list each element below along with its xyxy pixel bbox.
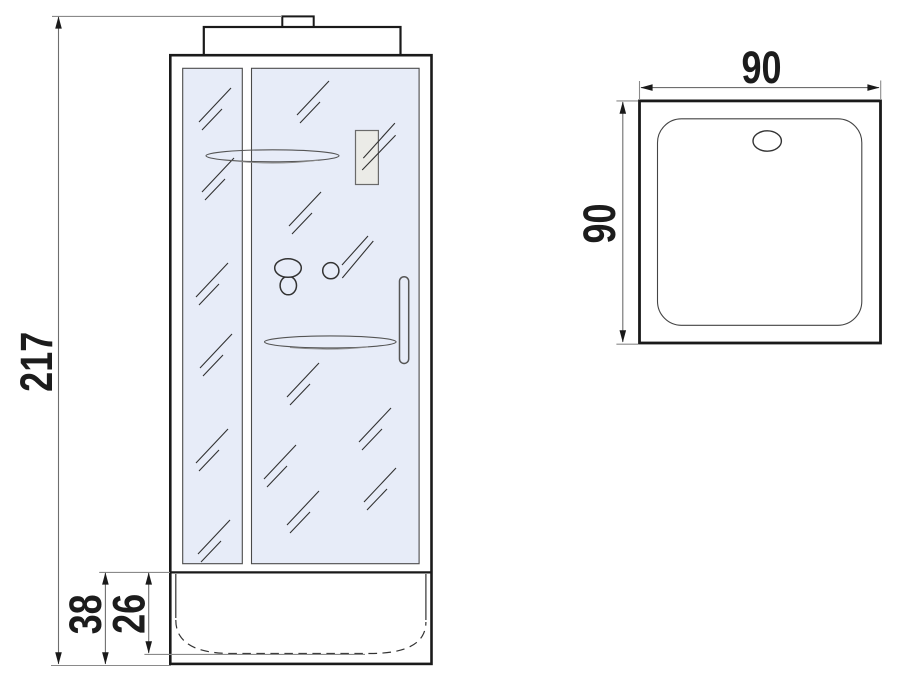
svg-text:90: 90 [741,42,781,93]
svg-text:217: 217 [11,332,62,392]
svg-text:90: 90 [574,203,625,243]
svg-text:26: 26 [104,594,155,634]
